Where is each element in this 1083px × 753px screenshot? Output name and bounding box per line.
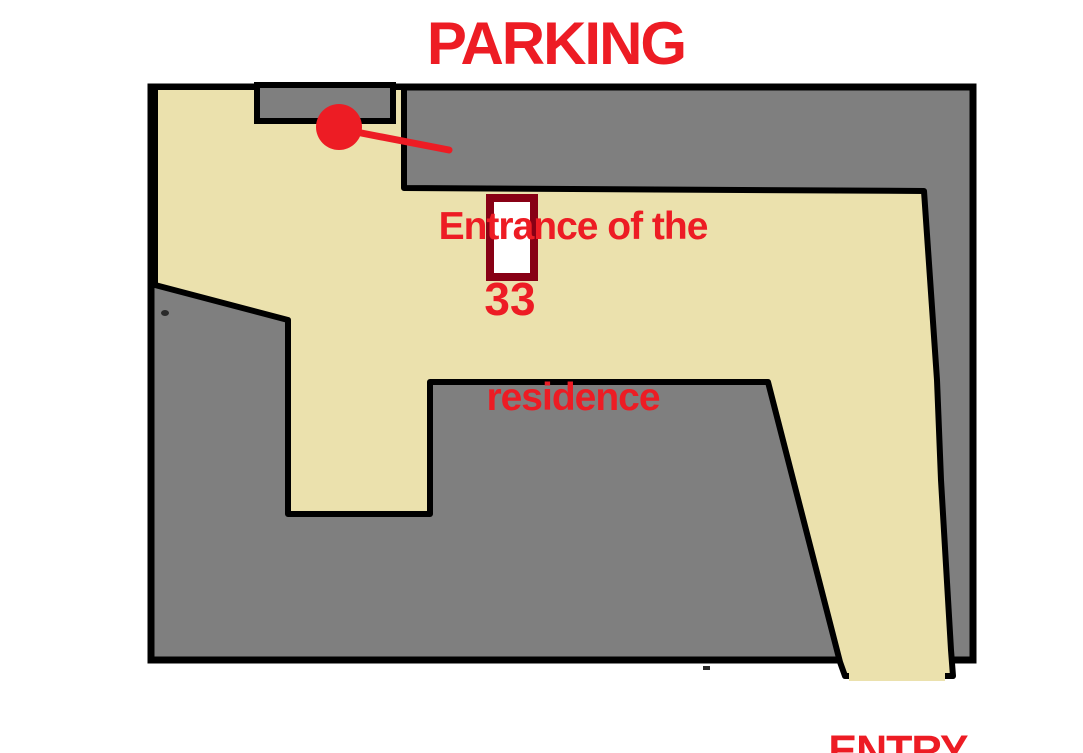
entrance-marker-dot [316,104,362,150]
entry-annotation-line1: ENTRY [770,732,1026,753]
entrance-annotation-line2: residence [368,369,778,426]
page-title: PARKING [330,14,782,74]
parking-spot-number: 33 [455,276,565,322]
entry-annotation: ENTRY LEVEL -2 [770,656,1026,753]
parking-map-page: PARKING Entrance of the residence 33 ENT… [0,0,1083,753]
stray-mark [703,666,710,670]
entrance-annotation: Entrance of the residence [368,84,778,540]
entrance-annotation-line1: Entrance of the [368,198,778,255]
stray-mark [161,310,169,316]
